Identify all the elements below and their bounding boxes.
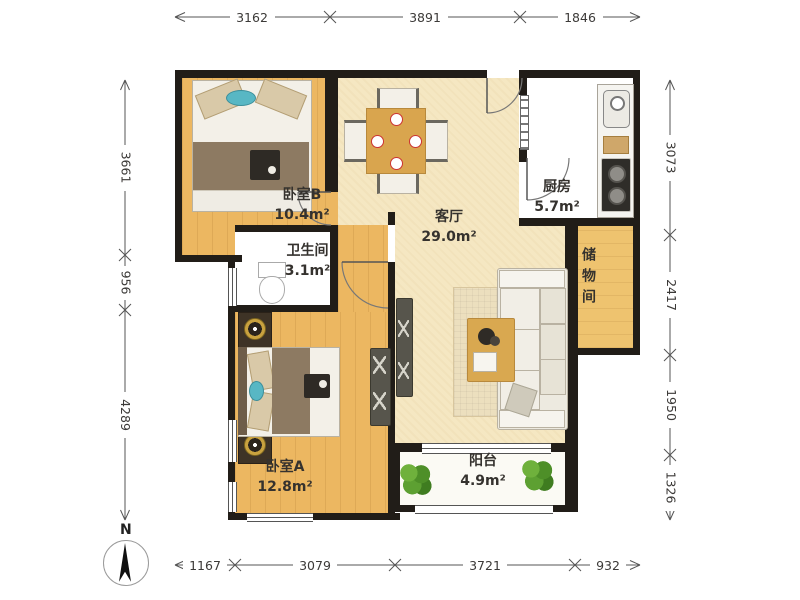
dimension-right: 3073 2417 1950 1326 (650, 70, 690, 540)
room-name: 客厅 (435, 207, 463, 227)
dim-value: 3721 (469, 558, 501, 573)
room-name: 卧室B (283, 185, 322, 205)
dim-value: 2417 (664, 279, 679, 311)
dimension-left: 3661 956 4289 (105, 70, 145, 540)
dim-value: 3079 (299, 558, 331, 573)
dimension-top: 3162 3891 1846 (0, 0, 800, 40)
dim-value: 1950 (664, 389, 679, 421)
room-name: 厨房 (543, 177, 571, 197)
dim-value: 1167 (189, 558, 221, 573)
floor-plan: 卧室B 10.4m² 客厅 29.0m² 厨房 5.7m² 卫生间 3.1m² … (0, 0, 800, 600)
dim-value: 1846 (564, 10, 596, 25)
bathroom-label: 卫生间 3.1m² (265, 241, 350, 281)
dim-value: 3661 (119, 152, 134, 184)
dim-value: 3073 (664, 142, 679, 174)
dim-value: 1326 (664, 472, 679, 504)
balcony-label: 阳台 4.9m² (440, 451, 526, 491)
dim-value: 932 (596, 558, 620, 573)
room-name: 卫生间 (287, 241, 329, 261)
bedroom-a-label: 卧室A 12.8m² (240, 457, 330, 497)
room-area: 5.7m² (534, 197, 580, 217)
kitchen-label: 厨房 5.7m² (518, 177, 596, 217)
storage-label: 储物间 (577, 228, 599, 328)
dimension-bottom: 1167 3079 3721 932 (0, 550, 800, 586)
dim-value: 3162 (236, 10, 268, 25)
bedroom-b-label: 卧室B 10.4m² (256, 185, 348, 225)
room-name: 卧室A (266, 457, 305, 477)
compass-north-label: N (120, 522, 132, 538)
dim-value: 4289 (118, 399, 133, 431)
room-area: 10.4m² (274, 205, 329, 225)
room-name: 储物间 (577, 228, 599, 328)
living-room-label: 客厅 29.0m² (405, 207, 493, 247)
room-name: 阳台 (469, 451, 497, 471)
room-area: 4.9m² (460, 471, 506, 491)
room-area: 12.8m² (257, 477, 312, 497)
dim-value: 956 (119, 271, 134, 295)
room-area: 29.0m² (421, 227, 476, 247)
room-area: 3.1m² (285, 261, 331, 281)
dim-value: 3891 (409, 10, 441, 25)
